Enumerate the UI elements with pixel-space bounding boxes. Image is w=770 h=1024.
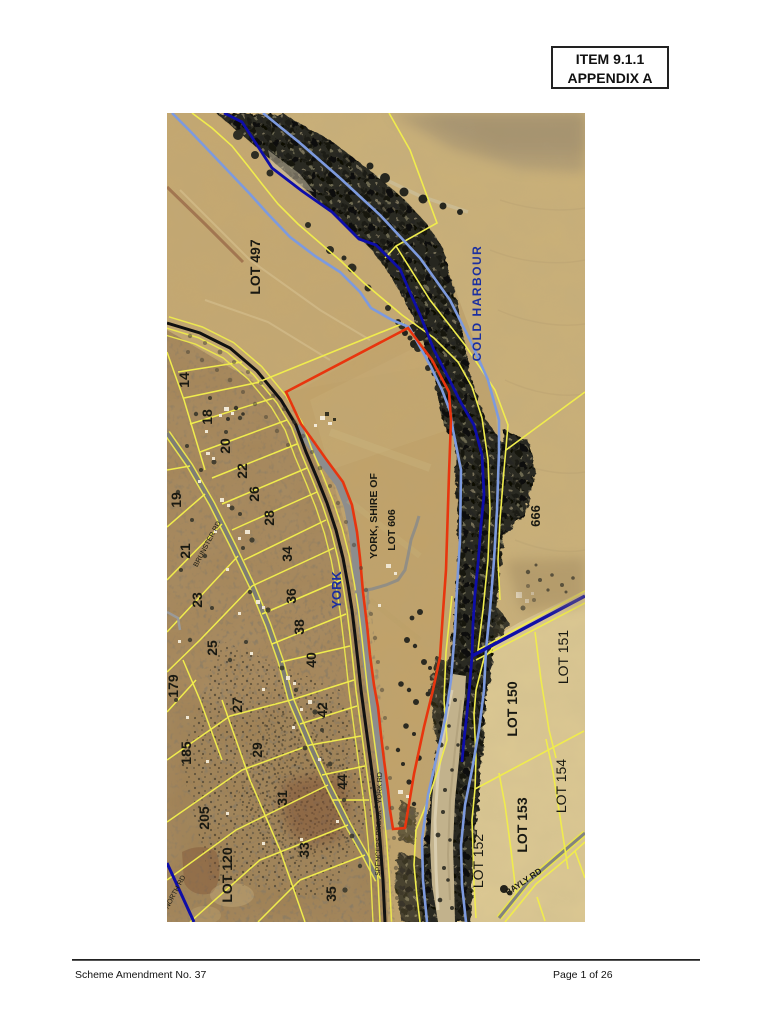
svg-text:179: 179 — [167, 674, 181, 698]
svg-text:YORK, SHIRE OF: YORK, SHIRE OF — [368, 473, 380, 559]
svg-text:22: 22 — [234, 463, 250, 479]
svg-text:LOT 120: LOT 120 — [219, 847, 235, 902]
svg-text:LOT 151: LOT 151 — [555, 630, 571, 684]
svg-text:21: 21 — [177, 543, 193, 559]
svg-text:29: 29 — [249, 742, 265, 758]
svg-text:35: 35 — [323, 886, 339, 902]
svg-text:666: 666 — [528, 505, 543, 527]
svg-text:42: 42 — [314, 702, 330, 718]
svg-text:18: 18 — [199, 409, 215, 425]
svg-text:25: 25 — [204, 640, 220, 656]
svg-text:38: 38 — [291, 619, 307, 635]
svg-text:19: 19 — [168, 492, 184, 508]
svg-text:COLD HARBOUR: COLD HARBOUR — [470, 245, 484, 362]
svg-text:27: 27 — [229, 697, 245, 713]
svg-text:LOT 606: LOT 606 — [386, 509, 398, 551]
svg-text:44: 44 — [334, 774, 350, 790]
svg-text:36: 36 — [283, 588, 299, 604]
svg-text:28: 28 — [261, 510, 277, 526]
svg-text:LOT 153: LOT 153 — [514, 797, 530, 852]
svg-text:34: 34 — [279, 546, 295, 562]
svg-text:20: 20 — [217, 438, 233, 454]
svg-text:33: 33 — [296, 842, 312, 858]
svg-text:31: 31 — [274, 790, 290, 806]
svg-text:185: 185 — [178, 741, 194, 765]
svg-text:YORK: YORK — [329, 571, 344, 609]
svg-text:LOT 154: LOT 154 — [553, 759, 569, 813]
svg-text:LOT 497: LOT 497 — [247, 239, 263, 294]
svg-text:LOT 152: LOT 152 — [470, 834, 486, 888]
svg-text:14: 14 — [176, 372, 192, 388]
svg-text:26: 26 — [246, 486, 262, 502]
svg-text:40: 40 — [303, 652, 319, 668]
svg-text:205: 205 — [196, 806, 212, 830]
svg-text:LOT 150: LOT 150 — [504, 681, 520, 736]
svg-text:23: 23 — [189, 592, 205, 608]
